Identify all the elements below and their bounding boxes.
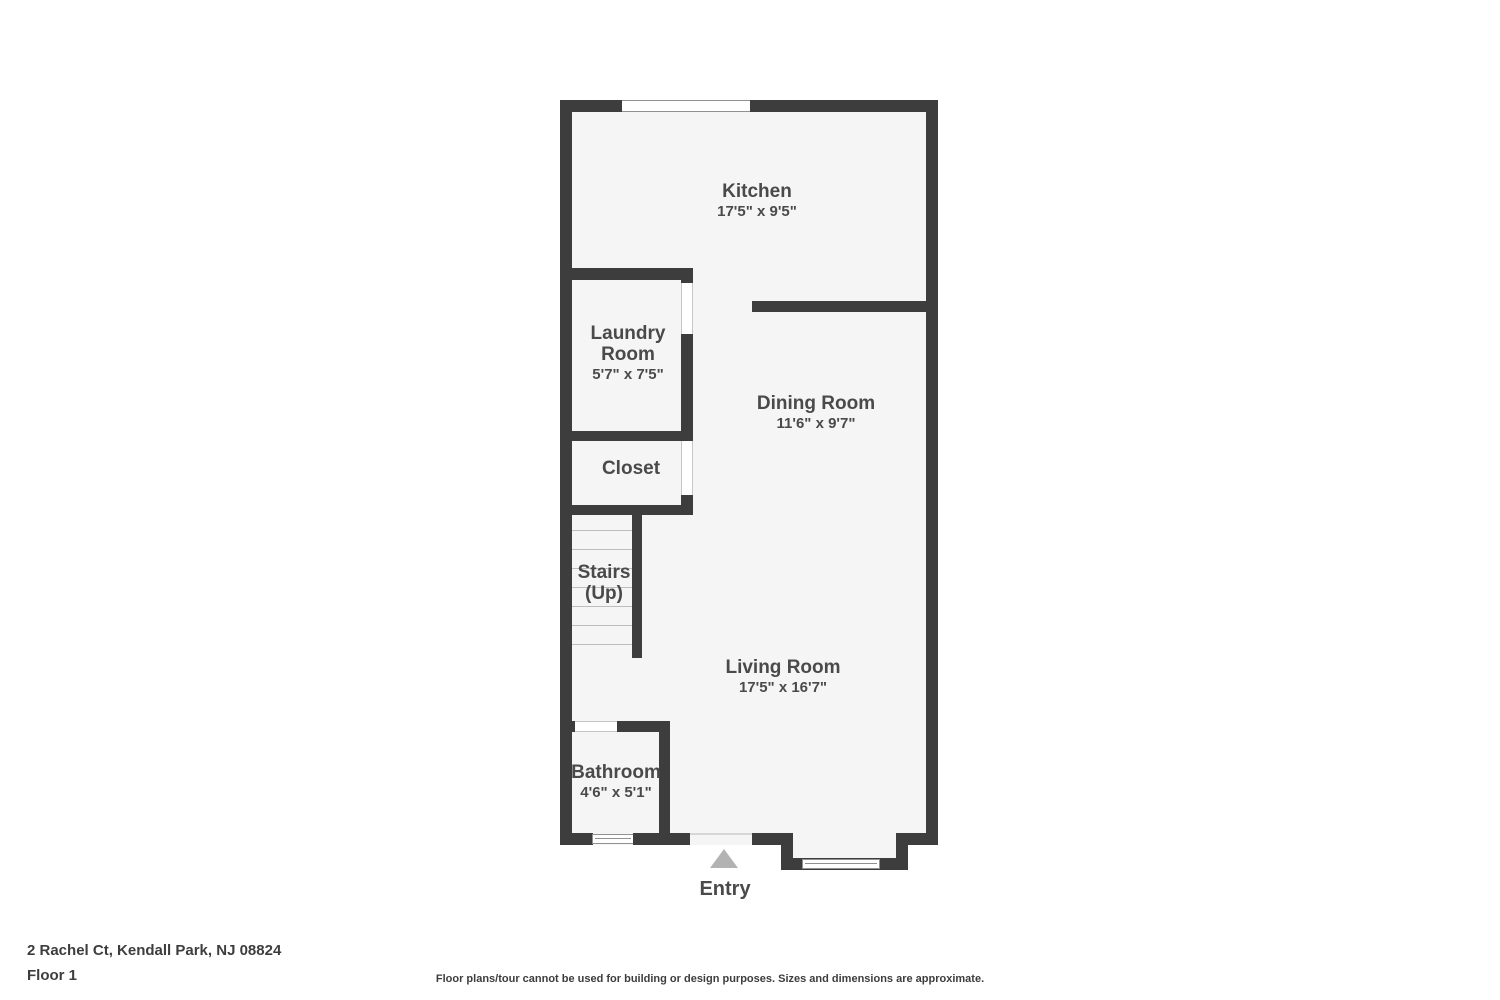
stair-step-line <box>572 625 632 626</box>
room-name: Stairs <box>578 562 631 583</box>
room-dimensions: 17'5" x 16'7" <box>725 678 840 697</box>
wall-laundry-right-stub <box>681 268 693 283</box>
room-dimensions: 11'6" x 9'7" <box>757 414 875 433</box>
wall-top-right <box>750 100 938 112</box>
stair-step-line <box>572 606 632 607</box>
property-address: 2 Rachel Ct, Kendall Park, NJ 08824 <box>27 942 281 959</box>
entry-label: Entry <box>699 878 750 901</box>
room-dimensions: 17'5" x 9'5" <box>717 202 797 221</box>
wall-stairs-right <box>632 515 642 658</box>
bathroom-window <box>592 834 634 844</box>
room-name: Room <box>591 344 666 365</box>
room-label-kitchen: Kitchen 17'5" x 9'5" <box>717 181 797 221</box>
room-dimensions: 5'7" x 7'5" <box>591 365 666 384</box>
wall-left <box>560 100 572 845</box>
entry-threshold <box>690 833 752 835</box>
room-label-living: Living Room 17'5" x 16'7" <box>725 657 840 697</box>
window-sash <box>595 838 631 839</box>
room-name: Bathroom <box>571 762 661 783</box>
room-label-stairs: Stairs (Up) <box>578 562 631 604</box>
room-label-bathroom: Bathroom 4'6" x 5'1" <box>571 762 661 802</box>
room-dimensions: 4'6" x 5'1" <box>571 783 661 802</box>
closet-door-opening <box>681 441 693 495</box>
wall-right <box>926 100 938 845</box>
room-label-closet: Closet <box>602 458 660 479</box>
wall-bay-right <box>896 843 908 870</box>
wall-kitchen-dining <box>752 301 938 312</box>
room-name: (Up) <box>578 583 631 604</box>
room-label-dining: Dining Room 11'6" x 9'7" <box>757 393 875 433</box>
stair-step-line <box>572 549 632 550</box>
wall-laundry-closet-divider <box>560 431 693 441</box>
disclaimer-text: Floor plans/tour cannot be used for buil… <box>436 973 984 985</box>
room-label-laundry: Laundry Room 5'7" x 7'5" <box>591 323 666 384</box>
stair-step-line <box>572 530 632 531</box>
wall-laundry-top <box>560 268 693 280</box>
wall-bottom-d <box>896 833 938 845</box>
floorplan: Kitchen 17'5" x 9'5" Laundry Room 5'7" x… <box>0 0 1500 1000</box>
stair-step-line <box>572 644 632 645</box>
living-room-window <box>802 859 880 869</box>
wall-laundry-right <box>681 334 693 433</box>
room-name: Laundry <box>591 323 666 344</box>
wall-closet-bottom <box>560 505 693 515</box>
laundry-door-opening <box>681 283 693 334</box>
floor-number-label: Floor 1 <box>27 967 77 984</box>
room-name: Kitchen <box>717 181 797 202</box>
wall-bottom-a <box>560 833 593 845</box>
kitchen-window <box>622 100 750 112</box>
window-sash <box>805 863 877 864</box>
wall-bathroom-top-a <box>560 721 575 732</box>
entry-arrow-icon <box>710 849 738 868</box>
bathroom-door-opening <box>575 721 617 732</box>
room-name: Living Room <box>725 657 840 678</box>
room-name: Closet <box>602 458 660 479</box>
room-name: Dining Room <box>757 393 875 414</box>
